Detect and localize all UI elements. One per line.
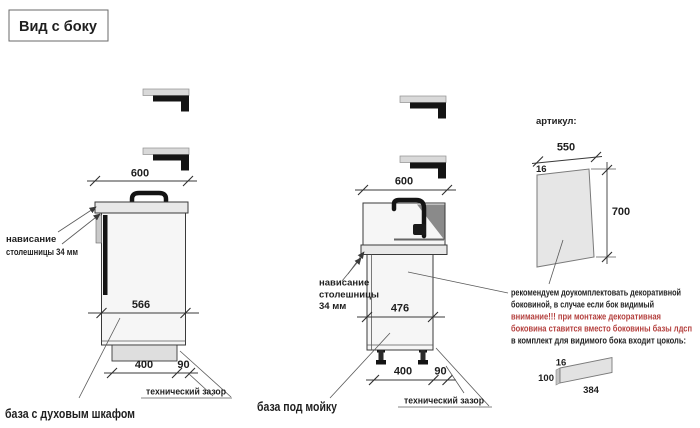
right-section: артикул: 550 16 700 рекомендуем доукомпл… — [511, 116, 692, 396]
page-title: Вид с боку — [19, 18, 98, 35]
dimension-600: 600 — [87, 168, 197, 187]
control-panel-edge — [96, 215, 102, 243]
gap-label: технический зазор — [404, 396, 484, 407]
articul-label: артикул: — [536, 116, 577, 127]
dim-label: 16 — [556, 358, 567, 369]
dim-label: 600 — [131, 168, 149, 180]
dim-label: 400 — [135, 359, 153, 371]
cabinet-body — [102, 213, 186, 345]
gap-label: технический зазор — [146, 387, 226, 398]
oven-door-edge — [103, 215, 108, 295]
overhang-note: нависание столешницы 34 мм — [6, 207, 100, 258]
dim-label: 100 — [538, 373, 554, 384]
dim-label: 400 — [394, 366, 412, 378]
faucet-mixer — [413, 224, 426, 235]
caption: база с духовым шкафом — [5, 407, 135, 421]
dimension-400-90: 400 90 — [366, 366, 456, 386]
dim-label: 384 — [583, 385, 600, 396]
middle-diagram: 600 — [257, 96, 508, 414]
dim-label: 700 — [612, 206, 630, 218]
note-line: нависание — [319, 278, 369, 289]
dimension-550: 550 — [532, 142, 602, 167]
countertop — [361, 245, 447, 255]
note-line: столешницы — [319, 290, 379, 301]
note-line: нависание — [6, 234, 56, 245]
warning-line: внимание!!! при монтаже декоративная — [511, 312, 661, 322]
adjustable-leg-icon — [376, 350, 386, 365]
title-box: Вид с боку — [9, 10, 108, 41]
dim-label: 550 — [557, 142, 575, 154]
decorative-side-panel — [537, 169, 594, 267]
dim-label: 600 — [395, 176, 413, 188]
note-line: столешницы 34 мм — [6, 247, 78, 258]
left-diagram: 600 566 400 90 — [5, 89, 232, 421]
side-view-drawing: Вид с боку 600 — [0, 0, 700, 428]
dim-label: 90 — [434, 366, 446, 378]
dim-label: 566 — [132, 299, 150, 311]
wall-bracket-icon — [143, 148, 189, 171]
wall-bracket-icon — [400, 96, 446, 119]
dimension-400-90: 400 90 — [104, 359, 198, 378]
technical-gap-label: технический зазор — [398, 348, 492, 407]
note-block: рекомендуем доукомплектовать декоративно… — [511, 288, 692, 346]
dim-label: 476 — [391, 303, 409, 315]
sink-cabinet — [361, 200, 447, 365]
dimension-700: 700 — [591, 162, 630, 264]
note-line: боковиной, в случае если бок видимый — [511, 300, 654, 310]
adjustable-leg-icon — [418, 350, 428, 365]
plinth-edge — [556, 368, 560, 385]
oven-cabinet — [95, 193, 188, 361]
note-line: 34 мм — [319, 301, 346, 312]
note-line: рекомендуем доукомплектовать декоративно… — [511, 288, 681, 298]
warning-line: боковина ставится вместо боковины базы л… — [511, 324, 692, 334]
plinth-face — [560, 358, 612, 384]
dim-label: 90 — [177, 359, 189, 371]
caption: база под мойку — [257, 400, 337, 414]
thickness-label: 16 — [536, 164, 547, 175]
wall-bracket-icon — [143, 89, 189, 112]
note-line: в комплект для видимого бока входит цоко… — [511, 336, 686, 346]
drawing-canvas: Вид с боку 600 — [0, 0, 700, 428]
countertop — [95, 202, 188, 213]
plinth-strip: 16 100 384 — [538, 358, 612, 397]
